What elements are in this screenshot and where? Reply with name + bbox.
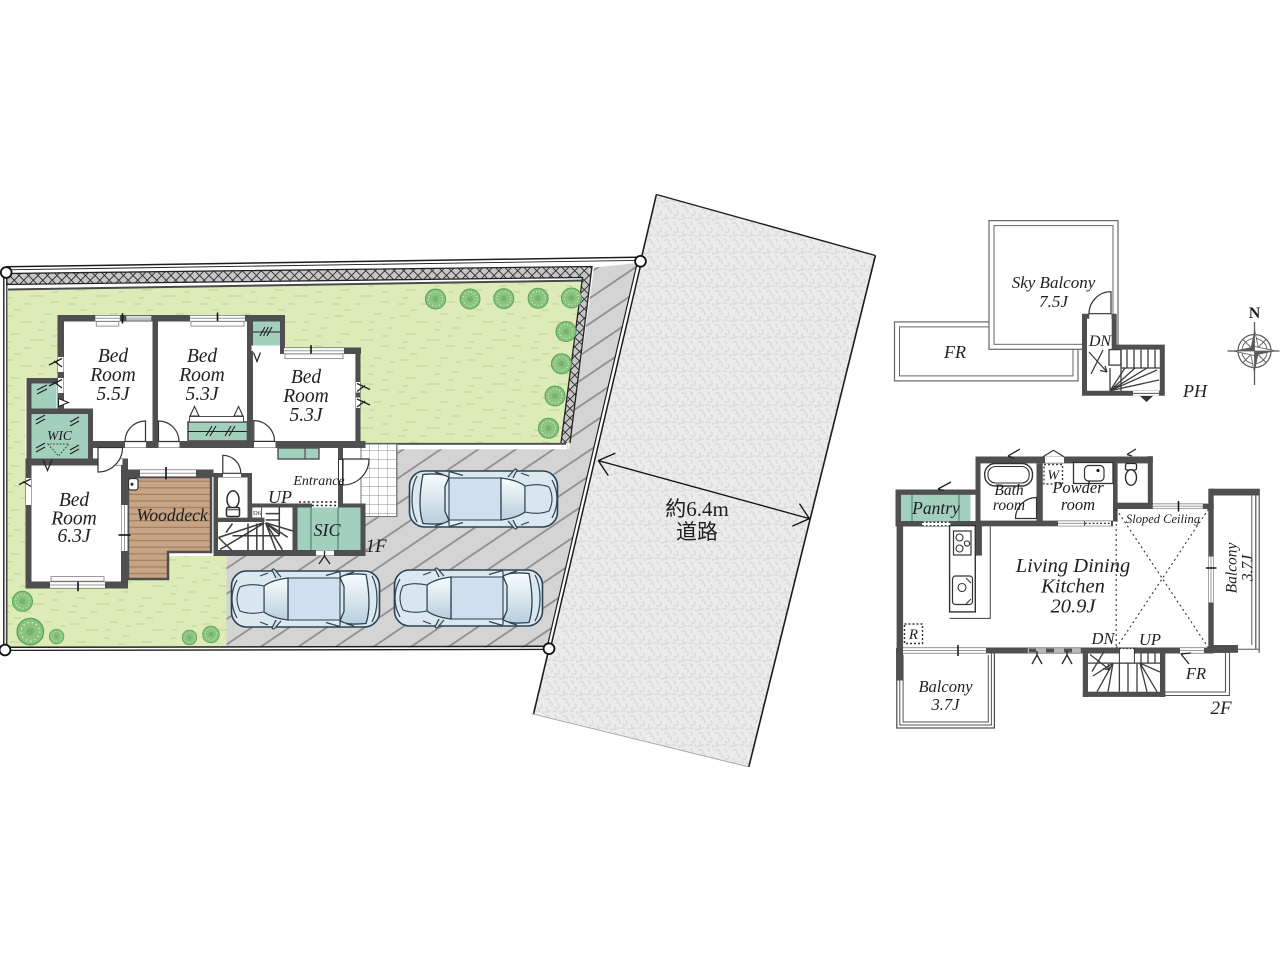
svg-text:3.7J: 3.7J xyxy=(931,695,961,714)
svg-text:Room: Room xyxy=(89,365,136,386)
svg-text:3.7J: 3.7J xyxy=(1240,554,1257,582)
svg-text:D6: D6 xyxy=(253,510,262,517)
svg-text:Balcony: Balcony xyxy=(918,677,973,696)
svg-text:2F: 2F xyxy=(1210,698,1232,719)
svg-text:Entrance: Entrance xyxy=(292,474,344,489)
svg-text:5.3J: 5.3J xyxy=(185,384,219,405)
svg-text:Bed: Bed xyxy=(187,346,218,367)
svg-text:UP: UP xyxy=(268,487,292,507)
svg-text:Wooddeck: Wooddeck xyxy=(136,505,209,525)
svg-text:道路: 道路 xyxy=(676,520,718,544)
svg-text:5.3J: 5.3J xyxy=(289,405,323,426)
svg-text:7.5J: 7.5J xyxy=(1039,292,1069,311)
svg-text:5.5J: 5.5J xyxy=(96,384,130,405)
svg-text:20.9J: 20.9J xyxy=(1051,596,1097,618)
svg-text:Kitchen: Kitchen xyxy=(1040,576,1105,598)
svg-text:FR: FR xyxy=(1185,664,1206,683)
svg-text:Bed: Bed xyxy=(98,346,129,367)
svg-text:room: room xyxy=(1061,495,1095,514)
svg-text:PH: PH xyxy=(1182,381,1208,401)
svg-text:1F: 1F xyxy=(366,536,388,557)
svg-text:Living Dining: Living Dining xyxy=(1015,555,1130,577)
svg-text:6.3J: 6.3J xyxy=(57,526,91,547)
svg-text:Room: Room xyxy=(178,365,225,386)
svg-text:Bed: Bed xyxy=(291,367,322,388)
svg-text:UP: UP xyxy=(1139,630,1161,649)
svg-text:room: room xyxy=(993,497,1025,514)
svg-text:Sloped Ceiling: Sloped Ceiling xyxy=(1126,512,1200,526)
svg-text:約6.4m: 約6.4m xyxy=(665,497,729,521)
svg-text:Pantry: Pantry xyxy=(911,498,960,518)
svg-text:Room: Room xyxy=(282,386,329,407)
svg-text:Balcony: Balcony xyxy=(1224,542,1241,593)
svg-text:N: N xyxy=(1249,305,1261,322)
svg-text:R: R xyxy=(908,627,918,643)
svg-text:DN: DN xyxy=(1091,629,1116,648)
svg-text:SIC: SIC xyxy=(314,520,342,540)
svg-text:DN: DN xyxy=(1088,333,1113,350)
svg-text:WIC: WIC xyxy=(47,428,73,443)
svg-text:Sky Balcony: Sky Balcony xyxy=(1012,273,1096,292)
svg-text:FR: FR xyxy=(943,342,966,362)
